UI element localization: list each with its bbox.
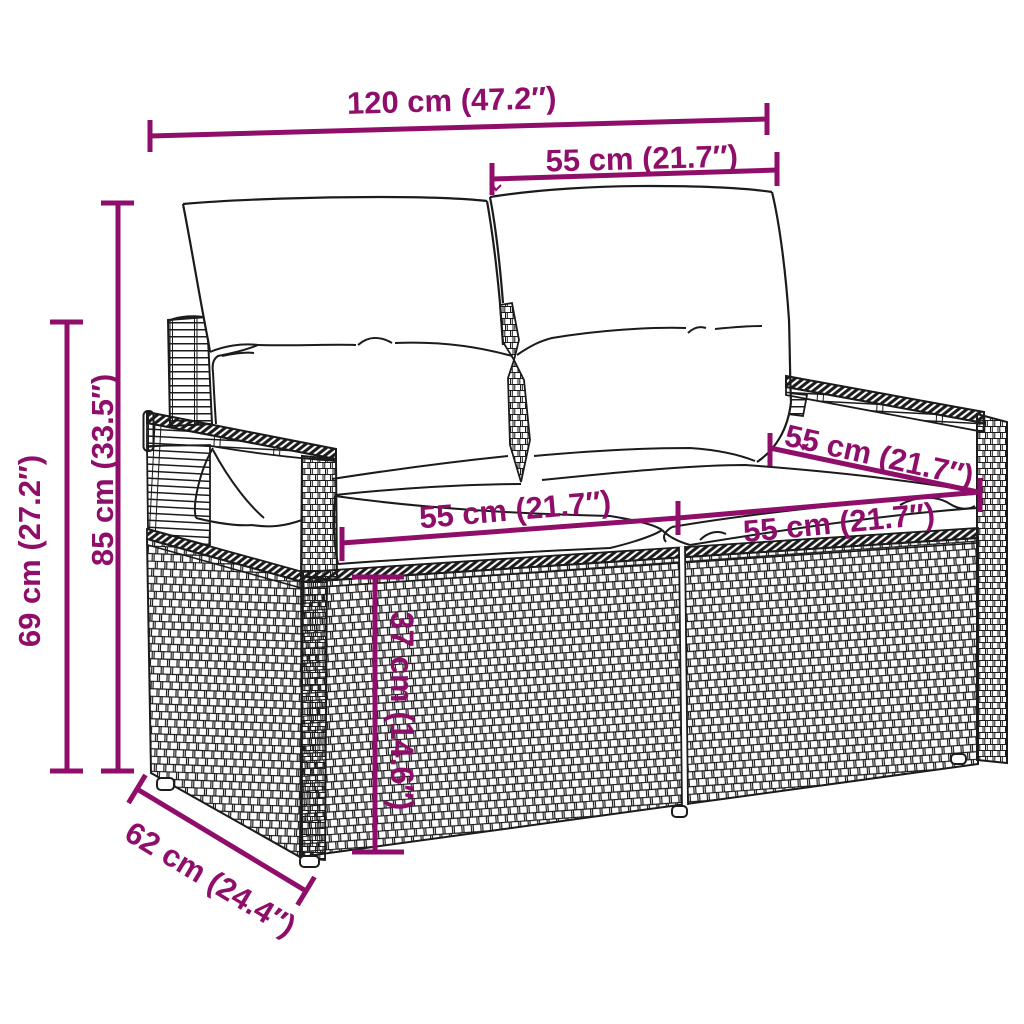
- svg-text:69 cm (27.2″): 69 cm (27.2″): [12, 455, 47, 647]
- svg-text:120 cm (47.2″): 120 cm (47.2″): [346, 80, 556, 121]
- svg-text:85 cm (33.5″): 85 cm (33.5″): [85, 374, 120, 566]
- svg-text:37 cm (14.6″): 37 cm (14.6″): [384, 612, 420, 811]
- svg-text:55 cm (21.7″): 55 cm (21.7″): [545, 138, 738, 178]
